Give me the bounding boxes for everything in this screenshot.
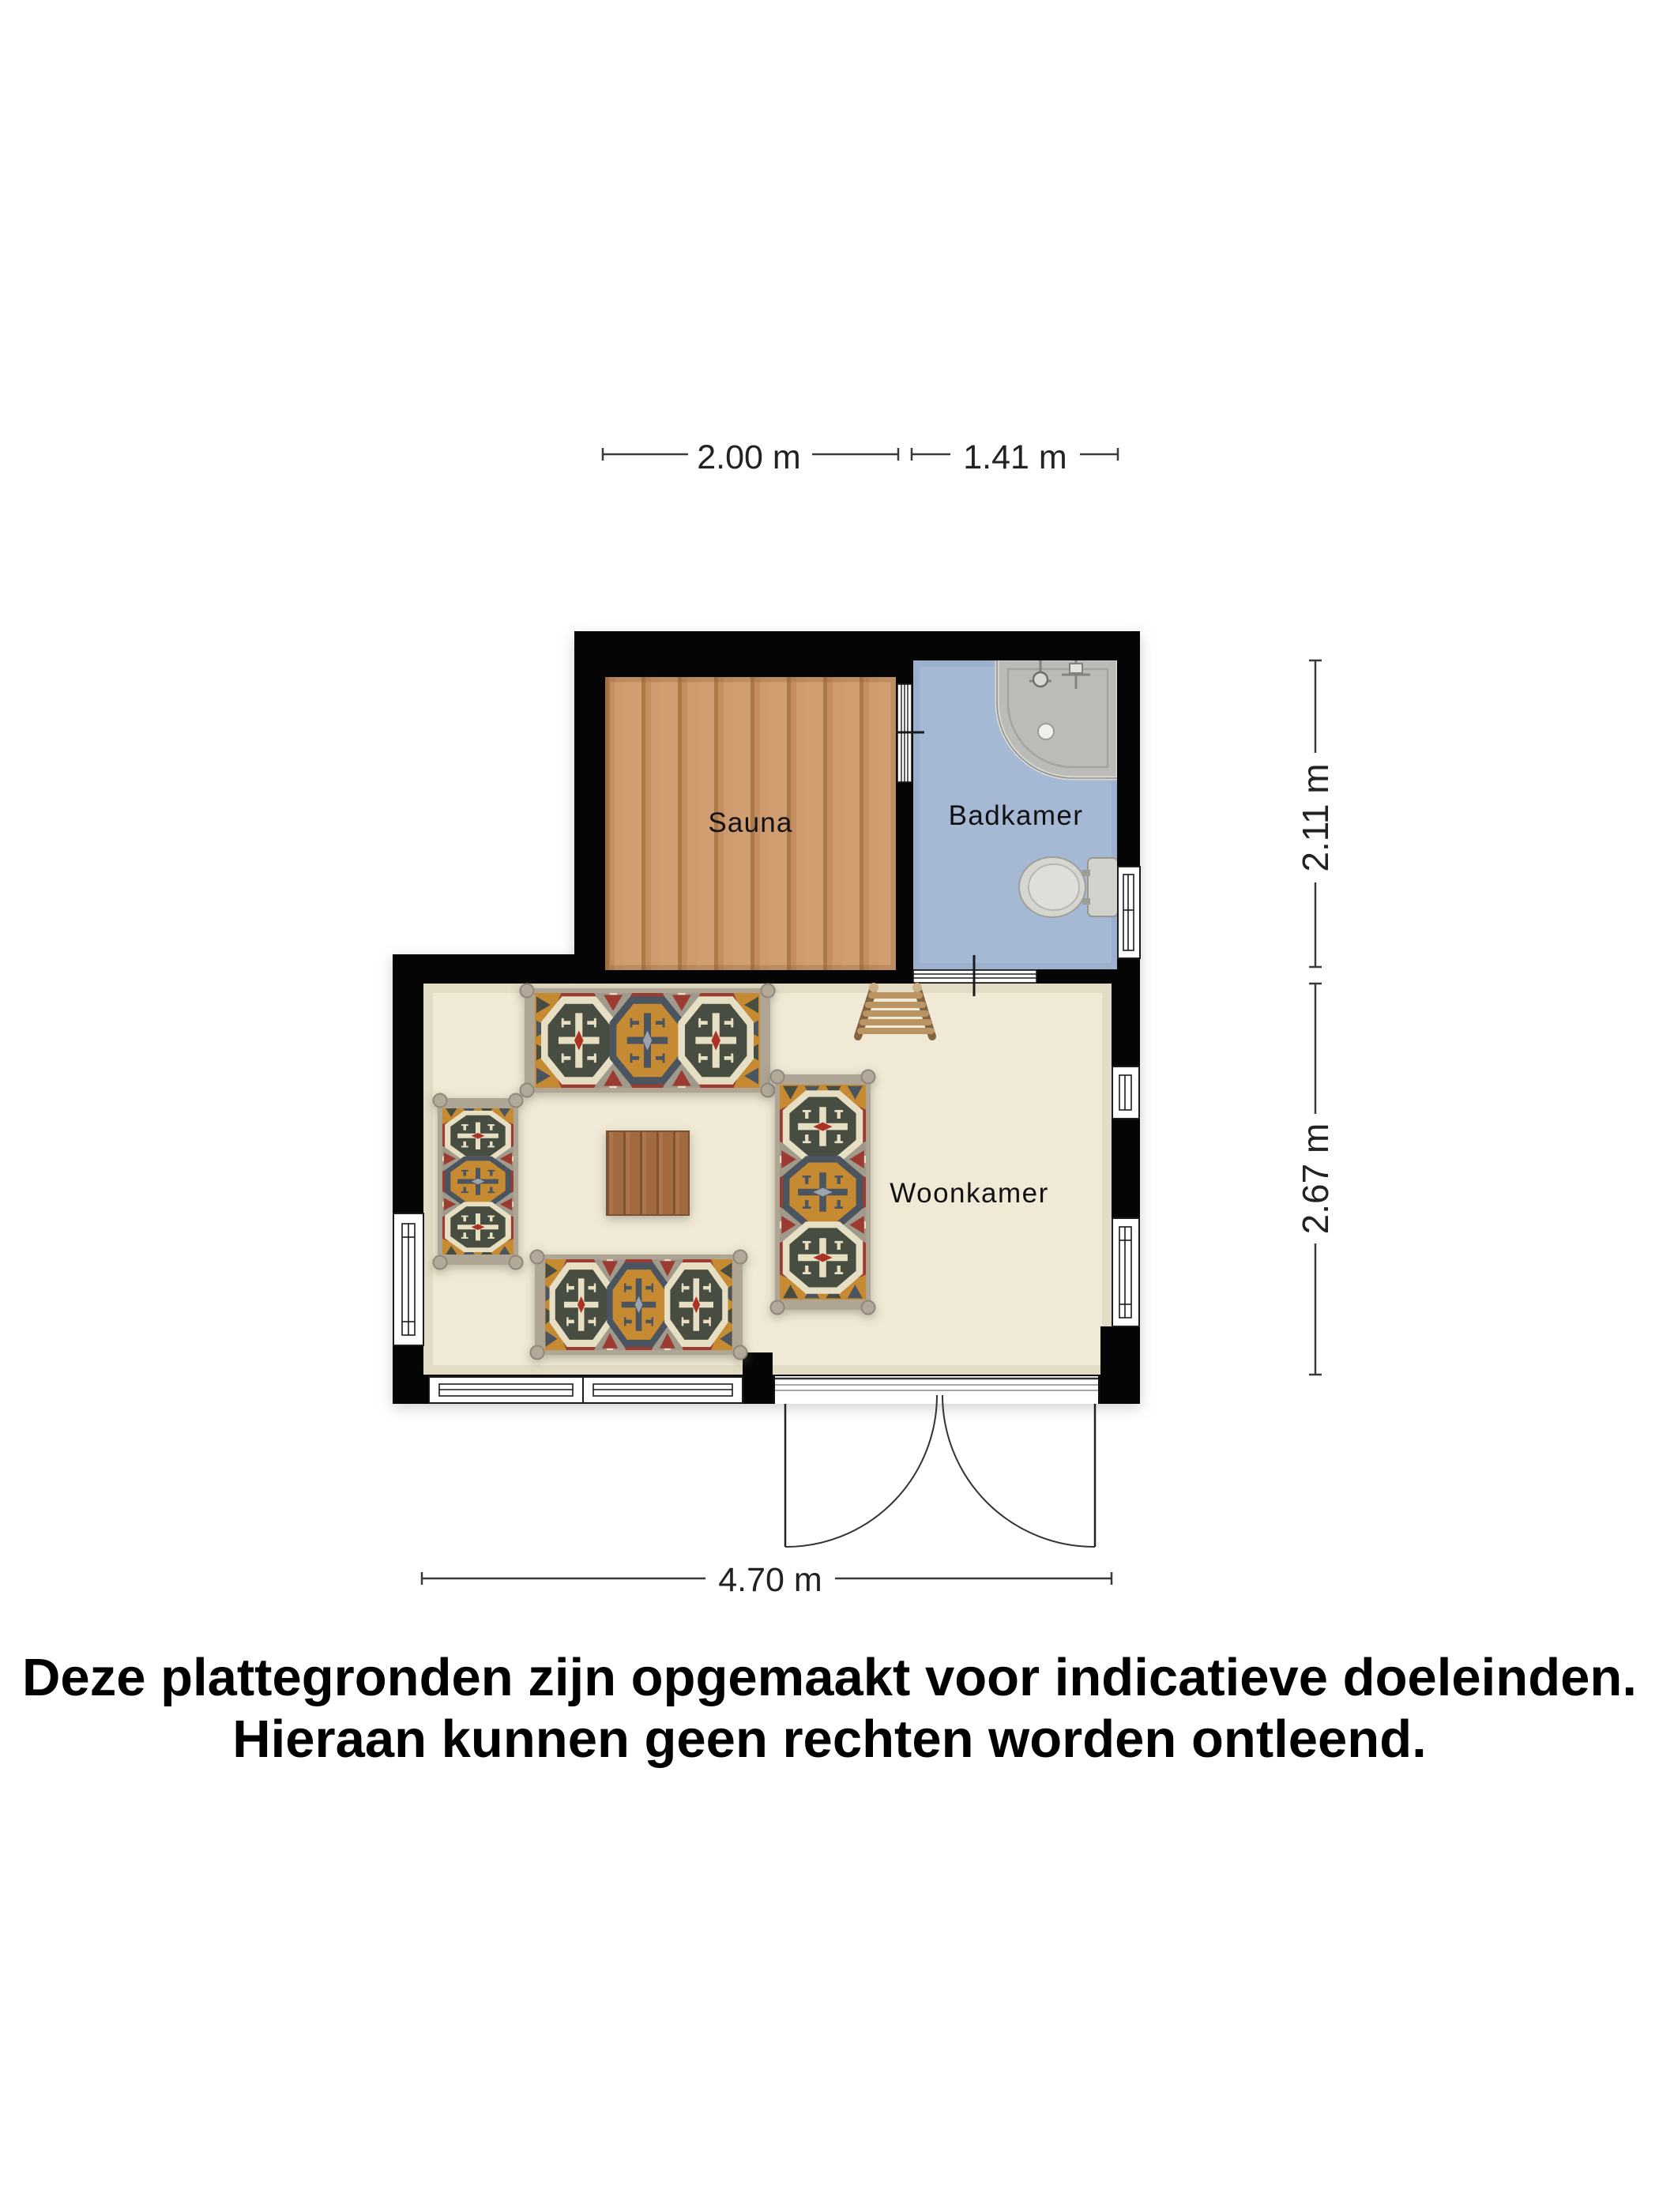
svg-text:2.67 m: 2.67 m <box>1295 1123 1336 1235</box>
svg-text:Sauna: Sauna <box>708 807 792 838</box>
svg-text:Badkamer: Badkamer <box>949 800 1084 831</box>
svg-text:2.00 m: 2.00 m <box>697 438 800 476</box>
svg-text:Woonkamer: Woonkamer <box>890 1178 1049 1209</box>
svg-text:2.11 m: 2.11 m <box>1295 763 1336 871</box>
svg-text:1.41 m: 1.41 m <box>963 438 1066 476</box>
svg-text:Hieraan kunnen geen rechten wo: Hieraan kunnen geen rechten worden ontle… <box>232 1710 1427 1769</box>
svg-text:Deze plattegronden zijn opgema: Deze plattegronden zijn opgemaakt voor i… <box>22 1648 1637 1707</box>
svg-text:4.70 m: 4.70 m <box>718 1561 822 1599</box>
